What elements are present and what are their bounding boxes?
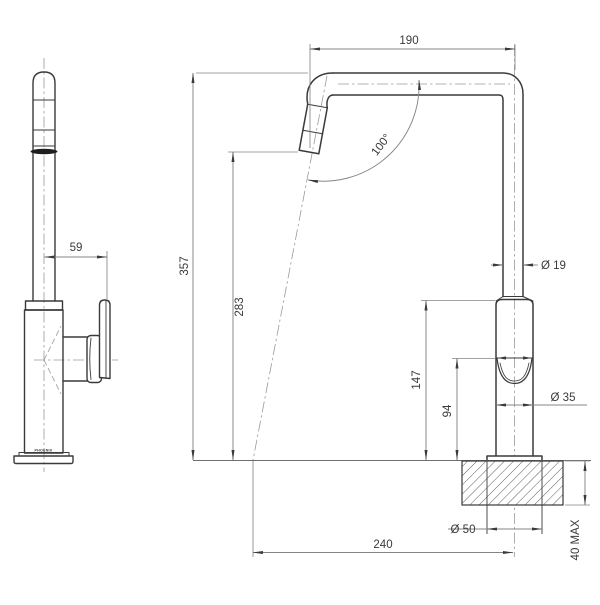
label-overall-height: 357 bbox=[179, 256, 191, 275]
front-spout-outer bbox=[299, 73, 333, 150]
technical-drawing: PHOENIX bbox=[0, 0, 600, 600]
front-spout-joint1 bbox=[308, 104, 328, 108]
label-bench-thickness: 40 MAX bbox=[570, 519, 582, 560]
label-handle-offset: 59 bbox=[70, 242, 83, 254]
side-handle-lever bbox=[100, 300, 111, 379]
label-handle-height: 94 bbox=[442, 404, 454, 417]
front-spout-joint2 bbox=[303, 130, 323, 134]
front-handle-arrow-right bbox=[523, 356, 532, 359]
label-spout-reach: 190 bbox=[399, 35, 418, 47]
drawing-canvas: PHOENIX bbox=[0, 0, 600, 600]
label-body-diameter: Ø 35 bbox=[551, 392, 576, 404]
side-base-flange bbox=[14, 456, 73, 464]
label-reach-to-outlet: 240 bbox=[373, 539, 392, 551]
bench-hatched-body bbox=[462, 461, 563, 505]
centerline-spout-projection bbox=[253, 76, 327, 460]
side-aerator-band bbox=[31, 149, 58, 154]
brand-text: PHOENIX bbox=[35, 448, 53, 452]
label-tube-diameter: Ø 19 bbox=[541, 260, 566, 272]
front-spout-outlet bbox=[299, 150, 319, 154]
front-top-tube bbox=[333, 73, 523, 297]
label-base-diameter: Ø 50 bbox=[451, 524, 476, 536]
label-outlet-height: 283 bbox=[234, 297, 246, 316]
front-handle-arrow-left bbox=[498, 356, 507, 359]
front-view bbox=[299, 73, 542, 461]
label-body-height: 147 bbox=[411, 370, 423, 389]
side-view bbox=[14, 72, 110, 464]
front-spout-inner bbox=[319, 95, 333, 154]
